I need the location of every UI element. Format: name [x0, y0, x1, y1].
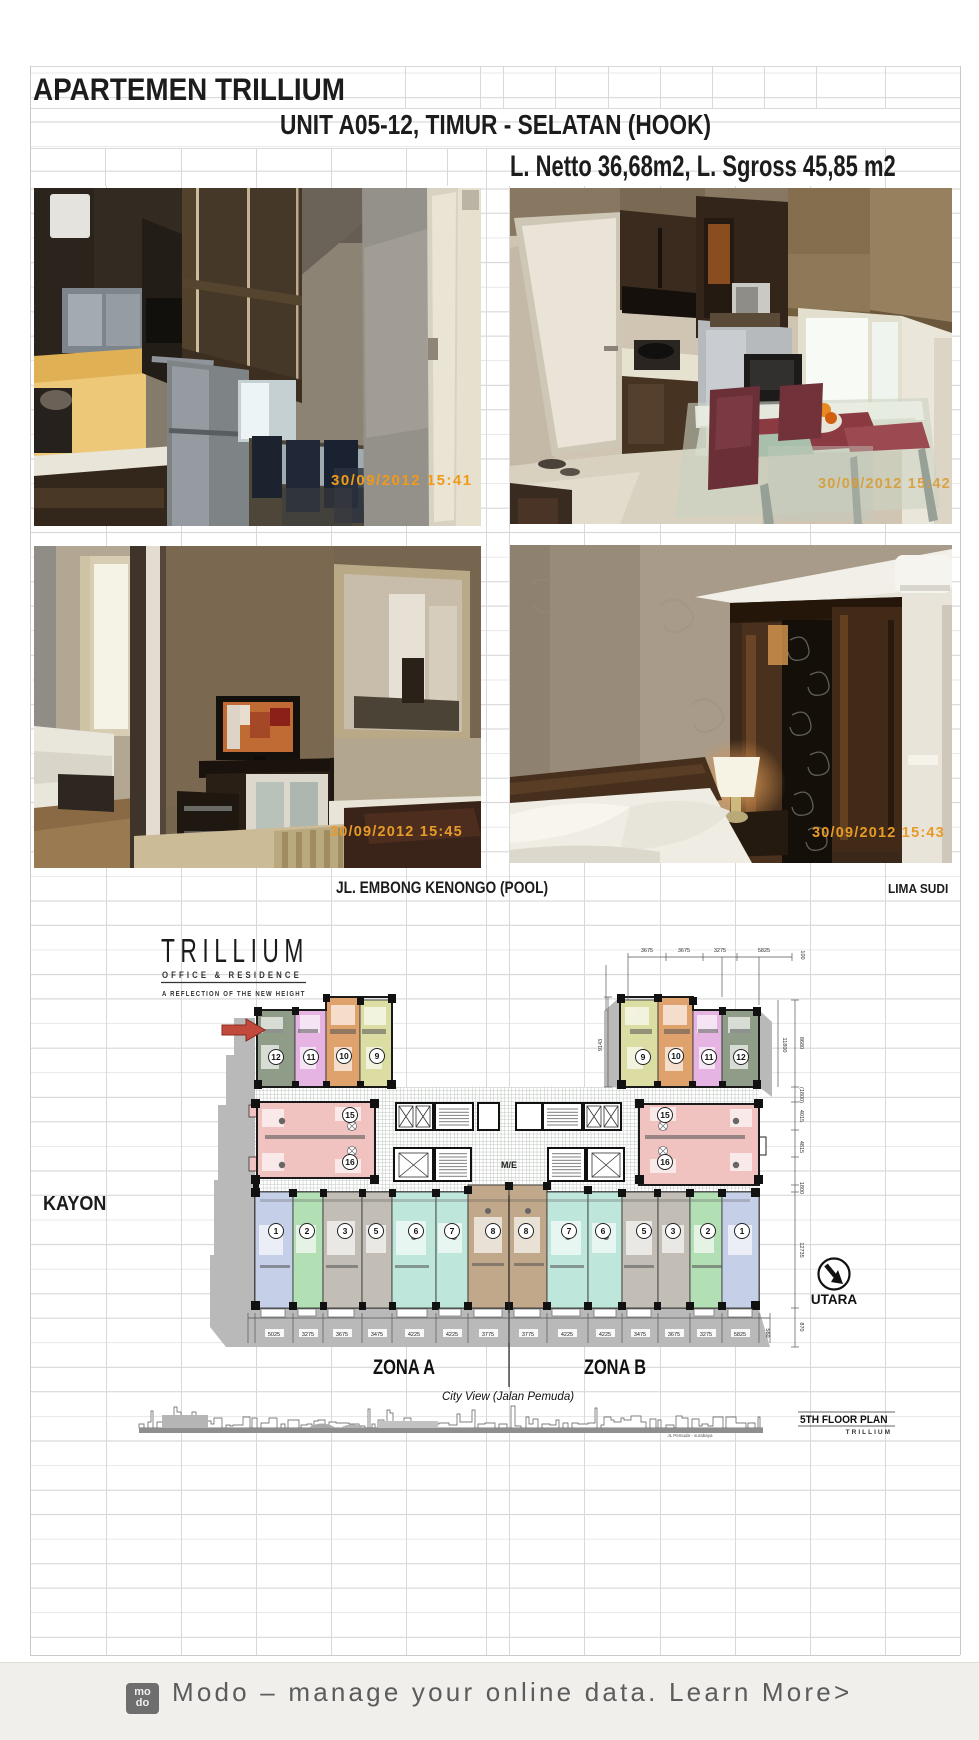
svg-text:30/09/2012 15:41: 30/09/2012 15:41 — [331, 472, 473, 489]
svg-text:5025: 5025 — [268, 1332, 280, 1338]
svg-text:TRILLIUM: TRILLIUM — [846, 1429, 892, 1436]
svg-text:560: 560 — [764, 1328, 770, 1337]
svg-text:3775: 3775 — [482, 1332, 494, 1338]
svg-text:5825: 5825 — [734, 1332, 746, 1338]
svg-text:3275: 3275 — [302, 1332, 314, 1338]
svg-text:JL Pemuda - surabaya: JL Pemuda - surabaya — [667, 1433, 713, 1438]
svg-text:5825: 5825 — [758, 948, 770, 954]
svg-text:4225: 4225 — [408, 1332, 420, 1338]
svg-text:1800: 1800 — [798, 1182, 804, 1194]
svg-text:12: 12 — [271, 1052, 281, 1062]
svg-text:11800: 11800 — [781, 1038, 787, 1053]
svg-text:8: 8 — [491, 1226, 496, 1236]
svg-text:A REFLECTION OF THE NEW HEIGHT: A REFLECTION OF THE NEW HEIGHT — [162, 990, 306, 998]
svg-text:1: 1 — [274, 1226, 279, 1236]
svg-text:3275: 3275 — [714, 948, 726, 954]
svg-text:8680: 8680 — [798, 1037, 804, 1049]
svg-text:11: 11 — [307, 1052, 316, 1062]
svg-text:16: 16 — [660, 1157, 670, 1167]
svg-text:4225: 4225 — [561, 1332, 573, 1338]
svg-text:3675: 3675 — [678, 948, 690, 954]
svg-text:2: 2 — [706, 1226, 711, 1236]
svg-text:ZONA A: ZONA A — [373, 1356, 435, 1379]
svg-text:10: 10 — [339, 1051, 349, 1061]
svg-text:100: 100 — [799, 950, 805, 959]
svg-text:9: 9 — [375, 1051, 380, 1061]
svg-text:16: 16 — [345, 1157, 355, 1167]
svg-text:5TH FLOOR PLAN: 5TH FLOOR PLAN — [800, 1414, 888, 1426]
svg-text:5: 5 — [374, 1226, 379, 1236]
svg-text:3: 3 — [671, 1226, 676, 1236]
svg-text:6: 6 — [601, 1226, 606, 1236]
svg-text:3675: 3675 — [336, 1332, 348, 1338]
svg-text:4225: 4225 — [599, 1332, 611, 1338]
svg-text:3675: 3675 — [668, 1332, 680, 1338]
svg-text:9143: 9143 — [598, 1039, 604, 1051]
svg-text:TRILLIUM: TRILLIUM — [161, 933, 309, 970]
svg-text:12735: 12735 — [798, 1242, 804, 1257]
svg-text:6: 6 — [414, 1226, 419, 1236]
svg-text:3: 3 — [343, 1226, 348, 1236]
svg-text:15: 15 — [345, 1110, 355, 1120]
svg-text:10: 10 — [671, 1051, 681, 1061]
svg-text:5: 5 — [642, 1226, 647, 1236]
svg-text:7: 7 — [567, 1226, 572, 1236]
svg-text:UTARA: UTARA — [811, 1292, 857, 1307]
svg-text:9: 9 — [641, 1052, 646, 1062]
svg-text:ZONA B: ZONA B — [584, 1356, 646, 1379]
svg-text:4015: 4015 — [798, 1110, 804, 1122]
svg-text:1: 1 — [740, 1226, 745, 1236]
svg-text:4225: 4225 — [446, 1332, 458, 1338]
svg-text:4815: 4815 — [798, 1141, 804, 1153]
svg-text:8: 8 — [524, 1226, 529, 1236]
svg-text:(1800): (1800) — [798, 1087, 804, 1103]
svg-text:30/09/2012 15:42: 30/09/2012 15:42 — [818, 476, 951, 492]
svg-text:11: 11 — [705, 1052, 714, 1062]
svg-text:OFFICE & RESIDENCE: OFFICE & RESIDENCE — [162, 969, 302, 980]
svg-text:30/09/2012 15:45: 30/09/2012 15:45 — [330, 824, 463, 840]
svg-text:City View (Jalan Pemuda): City View (Jalan Pemuda) — [442, 1391, 574, 1403]
svg-text:3275: 3275 — [700, 1332, 712, 1338]
svg-text:15: 15 — [660, 1110, 670, 1120]
svg-text:870: 870 — [798, 1322, 804, 1331]
svg-text:3775: 3775 — [522, 1332, 534, 1338]
svg-text:3475: 3475 — [634, 1332, 646, 1338]
svg-text:30/09/2012 15:43: 30/09/2012 15:43 — [812, 825, 945, 841]
svg-text:2: 2 — [305, 1226, 310, 1236]
svg-text:3675: 3675 — [641, 948, 653, 954]
svg-text:M/E: M/E — [501, 1160, 517, 1170]
svg-text:3475: 3475 — [371, 1332, 383, 1338]
svg-text:12: 12 — [736, 1052, 746, 1062]
svg-text:7: 7 — [450, 1226, 455, 1236]
